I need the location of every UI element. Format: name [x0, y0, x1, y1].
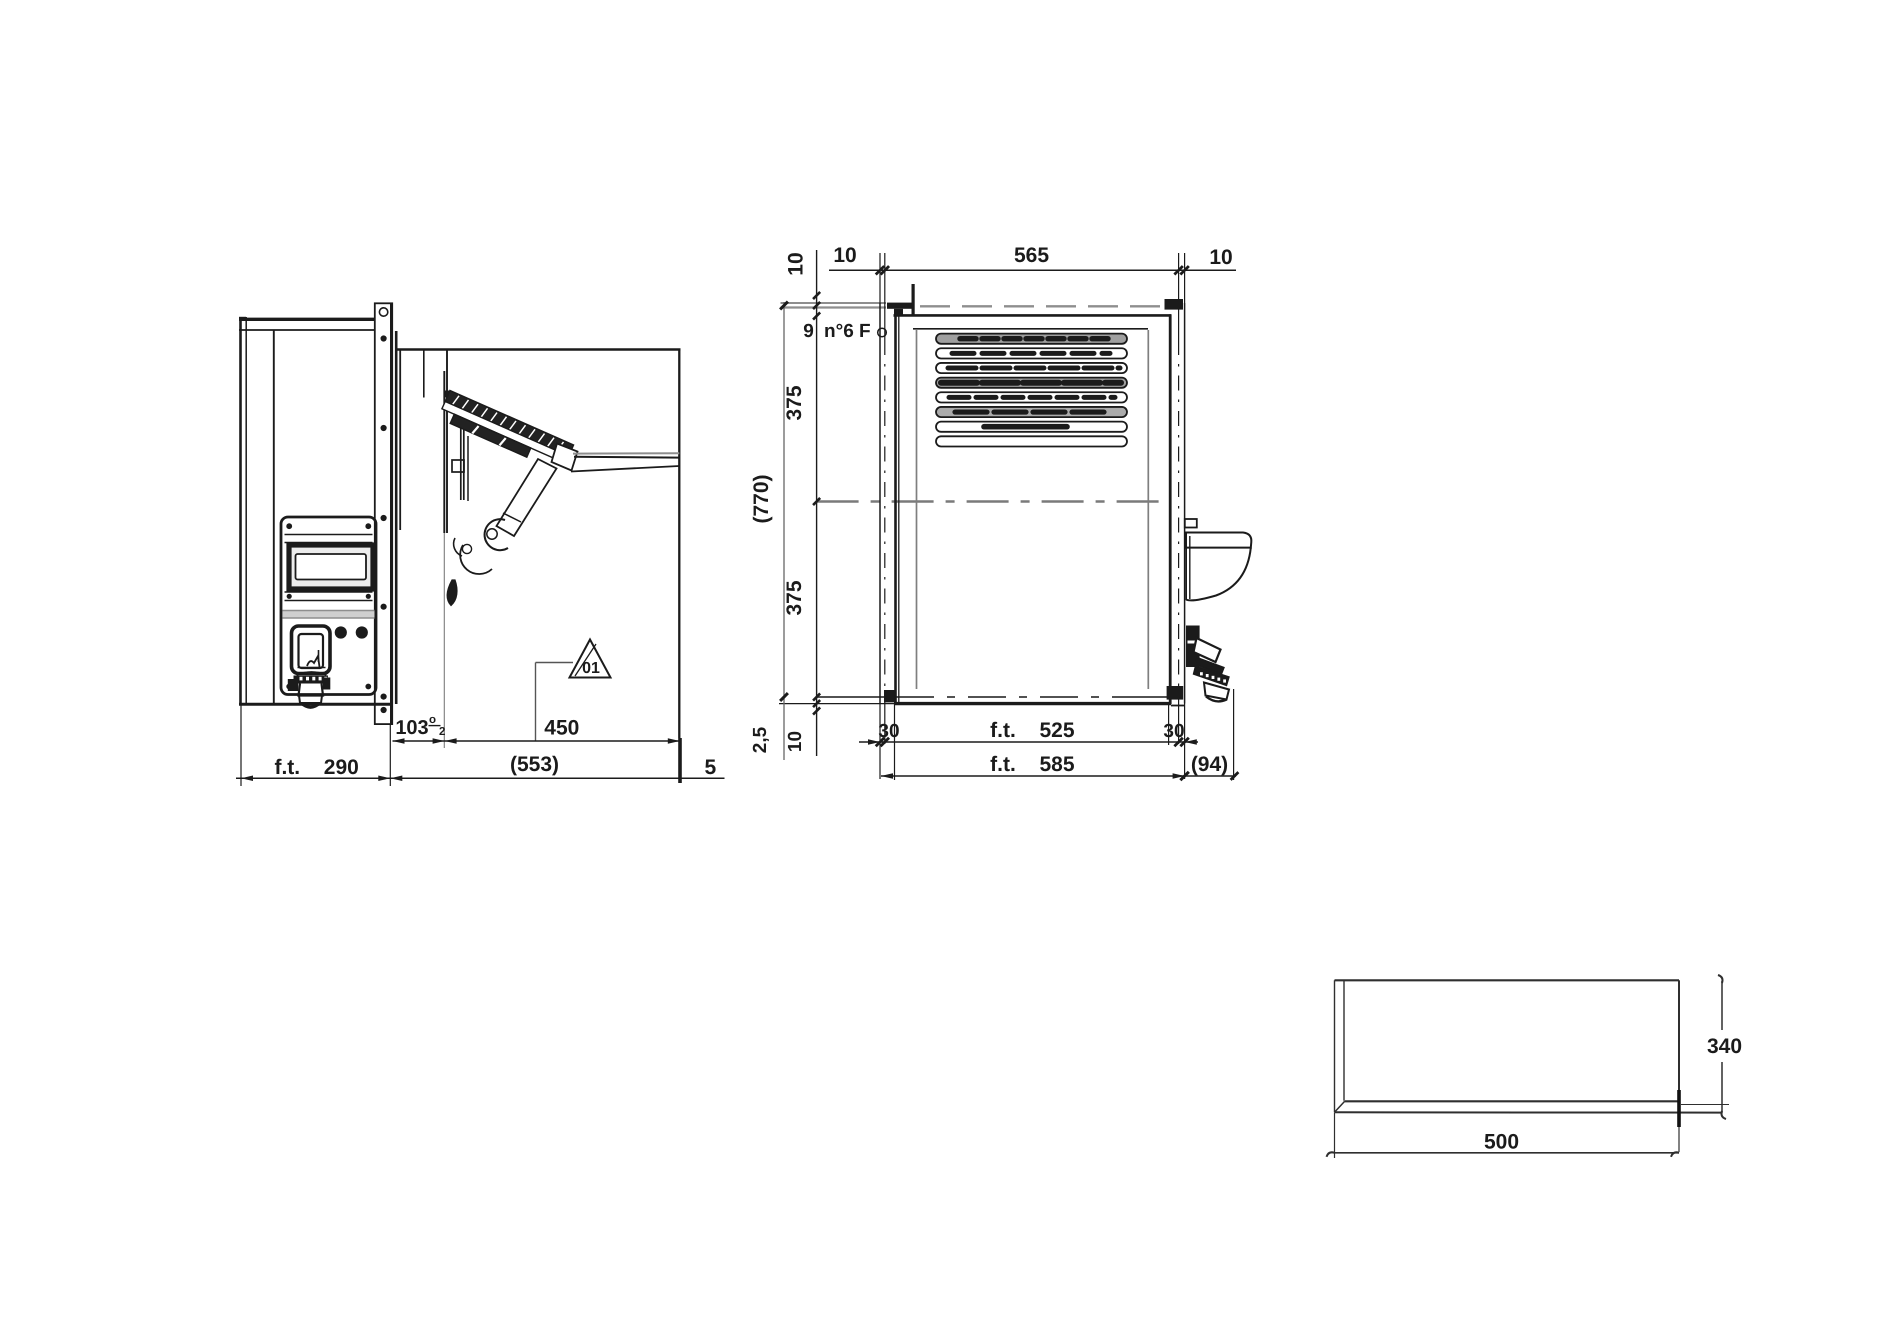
- svg-text:o: o: [429, 714, 436, 726]
- svg-text:375: 375: [783, 385, 806, 420]
- svg-text:30: 30: [1163, 721, 1184, 742]
- svg-text:103: 103: [395, 717, 428, 739]
- svg-text:375: 375: [783, 580, 806, 615]
- svg-text:290: 290: [324, 756, 359, 779]
- svg-text:f.t.: f.t.: [990, 719, 1016, 742]
- svg-text:30: 30: [878, 721, 899, 742]
- svg-text:340: 340: [1707, 1035, 1742, 1058]
- svg-text:2,5: 2,5: [750, 726, 771, 753]
- svg-text:9: 9: [803, 321, 814, 342]
- svg-text:(553): (553): [510, 753, 559, 776]
- svg-text:585: 585: [1039, 753, 1074, 776]
- svg-text:5: 5: [705, 756, 717, 779]
- svg-text:(770): (770): [750, 474, 773, 523]
- svg-text:(94): (94): [1191, 753, 1228, 776]
- svg-text:2: 2: [439, 726, 445, 738]
- svg-text:f.t.: f.t.: [274, 756, 300, 779]
- svg-text:10: 10: [833, 244, 856, 267]
- svg-text:450: 450: [544, 717, 579, 740]
- svg-text:565: 565: [1014, 244, 1049, 267]
- svg-text:f.t.: f.t.: [990, 753, 1016, 776]
- svg-text:n°6 F: n°6 F: [824, 321, 871, 342]
- svg-text:10: 10: [1209, 246, 1232, 269]
- svg-text:500: 500: [1484, 1131, 1519, 1154]
- svg-text:10: 10: [785, 731, 806, 752]
- svg-text:525: 525: [1039, 719, 1074, 742]
- svg-text:01: 01: [582, 660, 600, 677]
- svg-text:10: 10: [785, 252, 808, 275]
